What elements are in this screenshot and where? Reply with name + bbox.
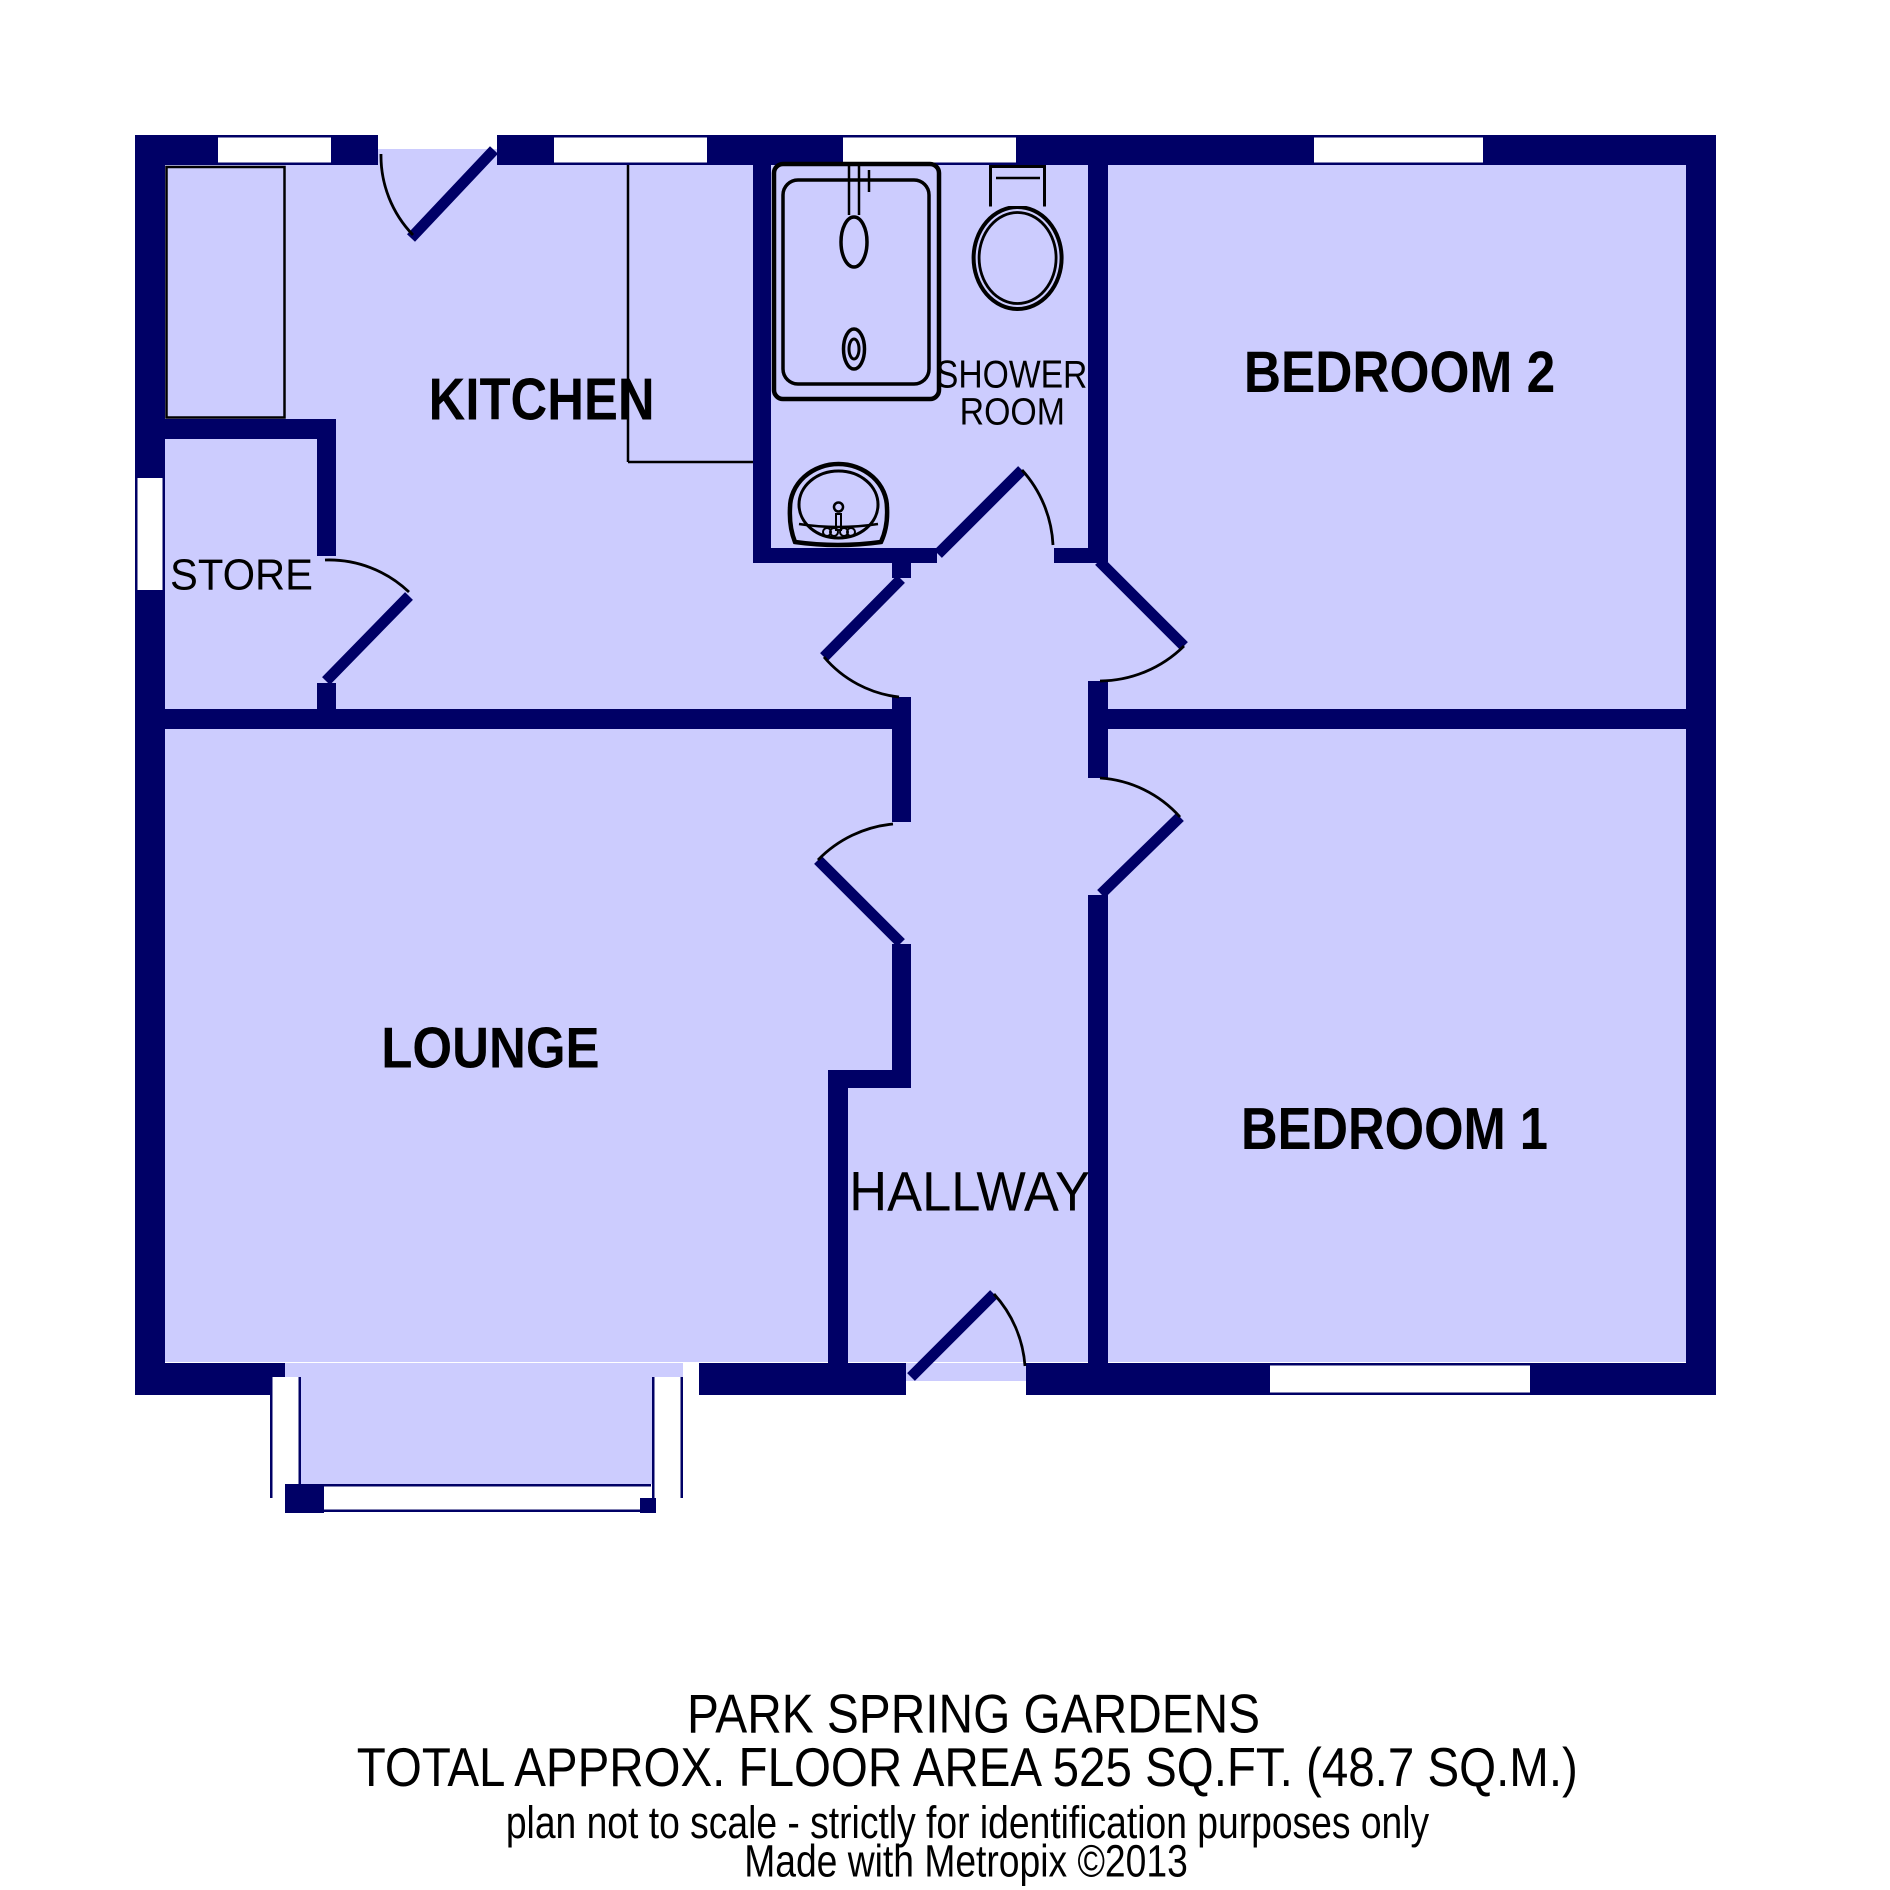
svg-text:KITCHEN: KITCHEN: [429, 366, 655, 433]
svg-text:STORE: STORE: [170, 552, 313, 600]
svg-text:ROOM: ROOM: [960, 390, 1065, 433]
svg-text:BEDROOM 1: BEDROOM 1: [1241, 1095, 1548, 1162]
svg-text:PARK SPRING GARDENS: PARK SPRING GARDENS: [687, 1683, 1260, 1745]
svg-text:LOUNGE: LOUNGE: [381, 1016, 599, 1081]
svg-text:HALLWAY: HALLWAY: [849, 1161, 1090, 1223]
svg-text:BEDROOM 2: BEDROOM 2: [1244, 339, 1555, 405]
svg-text:TOTAL APPROX. FLOOR AREA 525 S: TOTAL APPROX. FLOOR AREA 525 SQ.FT. (48.…: [357, 1737, 1578, 1798]
svg-text:Made with Metropix ©2013: Made with Metropix ©2013: [744, 1836, 1188, 1886]
